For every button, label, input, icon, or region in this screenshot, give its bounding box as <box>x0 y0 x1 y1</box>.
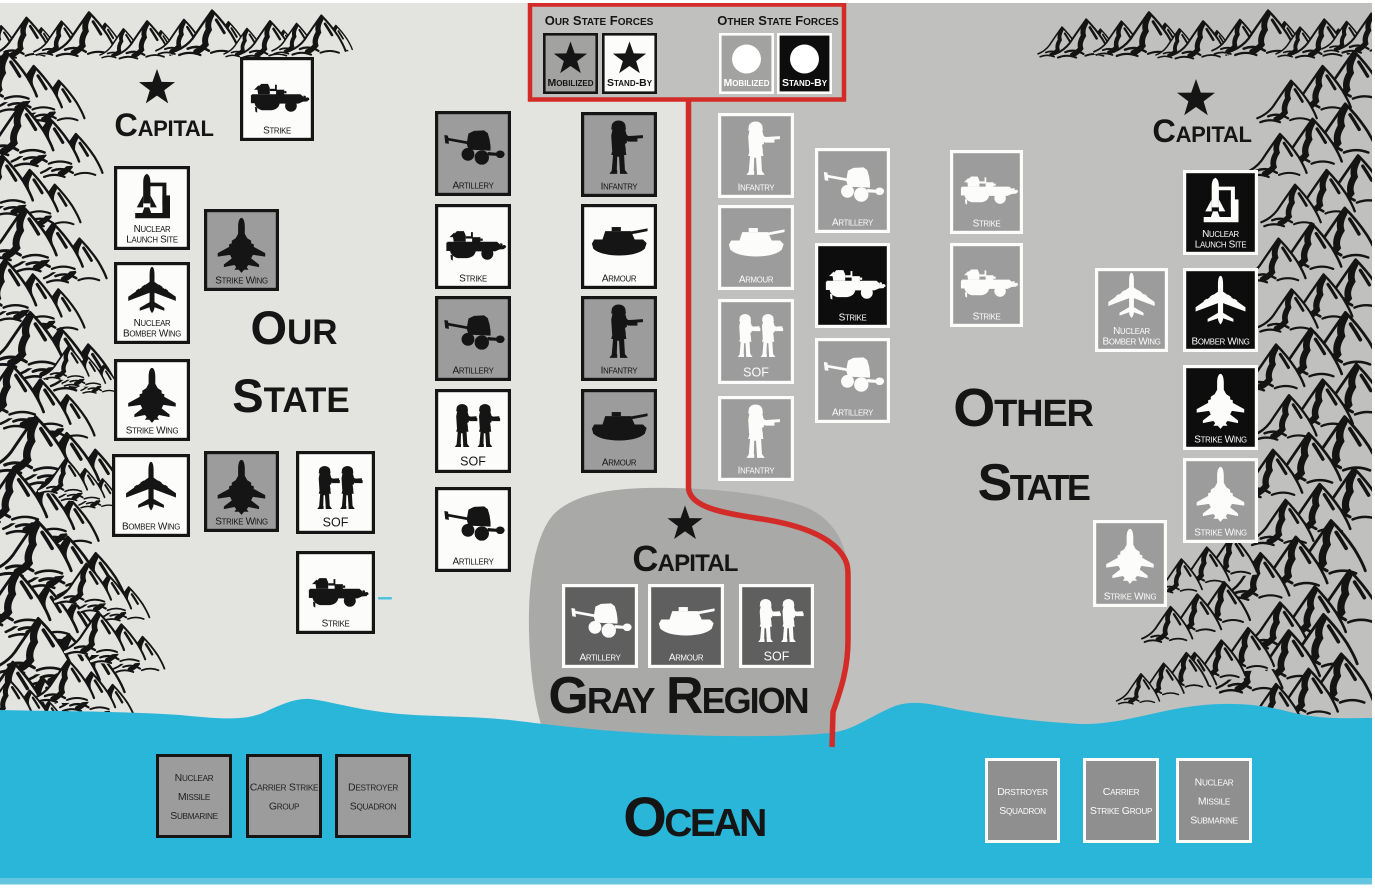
svg-text:STRIKE WING: STRIKE WING <box>126 426 179 437</box>
svg-text:NUCLEAR: NUCLEAR <box>1113 326 1150 337</box>
svg-text:BOMBER WING: BOMBER WING <box>123 329 181 340</box>
svg-text:SOF: SOF <box>764 650 790 664</box>
svg-text:MOBILIZED: MOBILIZED <box>547 77 593 89</box>
svg-text:MOBILIZED: MOBILIZED <box>723 77 769 89</box>
svg-text:STRIKE WING: STRIKE WING <box>1194 528 1247 539</box>
svg-text:STRIKE GROUP: STRIKE GROUP <box>1090 805 1153 817</box>
svg-text:ARMOUR: ARMOUR <box>669 653 704 664</box>
svg-text:STRIKE WING: STRIKE WING <box>215 276 268 287</box>
svg-text:CARRIER: CARRIER <box>1103 786 1140 798</box>
svg-text:ARMOUR: ARMOUR <box>739 275 774 286</box>
svg-text:SQUADRON: SQUADRON <box>350 801 397 813</box>
svg-text:STRIKE: STRIKE <box>322 619 350 630</box>
svg-text:INFANTRY: INFANTRY <box>601 366 639 377</box>
svg-text:ARTILLERY: ARTILLERY <box>453 366 495 377</box>
svg-text:ARTILLERY: ARTILLERY <box>453 181 495 192</box>
svg-text:STRIKE: STRIKE <box>973 219 1001 230</box>
svg-text:MISSILE: MISSILE <box>1198 796 1231 808</box>
svg-text:DESTROYER: DESTROYER <box>348 782 398 794</box>
svg-text:ARMOUR: ARMOUR <box>602 458 637 469</box>
svg-text:INFANTRY: INFANTRY <box>601 182 639 193</box>
svg-text:BOMBER WING: BOMBER WING <box>1191 337 1249 348</box>
svg-text:INFANTRY: INFANTRY <box>738 466 776 477</box>
svg-text:SOF: SOF <box>743 366 769 380</box>
svg-text:STRIKE WING: STRIKE WING <box>1104 592 1157 603</box>
svg-text:LAUNCH SITE: LAUNCH SITE <box>126 235 178 246</box>
svg-text:BOMBER WING: BOMBER WING <box>1102 337 1160 348</box>
svg-text:SUBMARINE: SUBMARINE <box>1190 815 1238 827</box>
svg-text:STRIKE: STRIKE <box>459 274 487 285</box>
svg-text:SOF: SOF <box>460 455 486 469</box>
svg-text:NUCLEAR: NUCLEAR <box>134 318 171 329</box>
svg-text:SUBMARINE: SUBMARINE <box>170 810 218 822</box>
svg-text:STRIKE: STRIKE <box>839 313 867 324</box>
svg-text:BOMBER WING: BOMBER WING <box>122 522 180 533</box>
svg-text:NUCLEAR: NUCLEAR <box>1195 777 1234 789</box>
svg-text:ARTILLERY: ARTILLERY <box>832 408 874 419</box>
svg-text:ARTILLERY: ARTILLERY <box>453 557 495 568</box>
svg-text:DRSTROYER: DRSTROYER <box>997 786 1048 798</box>
svg-text:MISSILE: MISSILE <box>178 791 211 803</box>
svg-text:SQUADRON: SQUADRON <box>999 805 1046 817</box>
svg-text:NUCLEAR: NUCLEAR <box>134 224 171 235</box>
svg-text:STRIKE: STRIKE <box>973 312 1001 323</box>
svg-text:ARMOUR: ARMOUR <box>602 274 637 285</box>
svg-text:GROUP: GROUP <box>269 801 300 813</box>
svg-text:STAND-BY: STAND-BY <box>782 77 828 89</box>
svg-text:NUCLEAR: NUCLEAR <box>175 772 214 784</box>
svg-text:STRIKE WING: STRIKE WING <box>215 517 268 528</box>
svg-text:CARRIER STRIKE: CARRIER STRIKE <box>250 782 319 794</box>
svg-text:STAND-BY: STAND-BY <box>607 77 653 89</box>
svg-text:SOF: SOF <box>323 516 349 530</box>
svg-text:INFANTRY: INFANTRY <box>738 183 776 194</box>
svg-text:STRIKE: STRIKE <box>263 126 291 137</box>
svg-text:NUCLEAR: NUCLEAR <box>1202 229 1239 240</box>
svg-text:ARTILLERY: ARTILLERY <box>580 653 622 664</box>
svg-text:LAUNCH SITE: LAUNCH SITE <box>1195 240 1247 251</box>
svg-text:STRIKE WING: STRIKE WING <box>1194 435 1247 446</box>
svg-text:ARTILLERY: ARTILLERY <box>832 218 874 229</box>
